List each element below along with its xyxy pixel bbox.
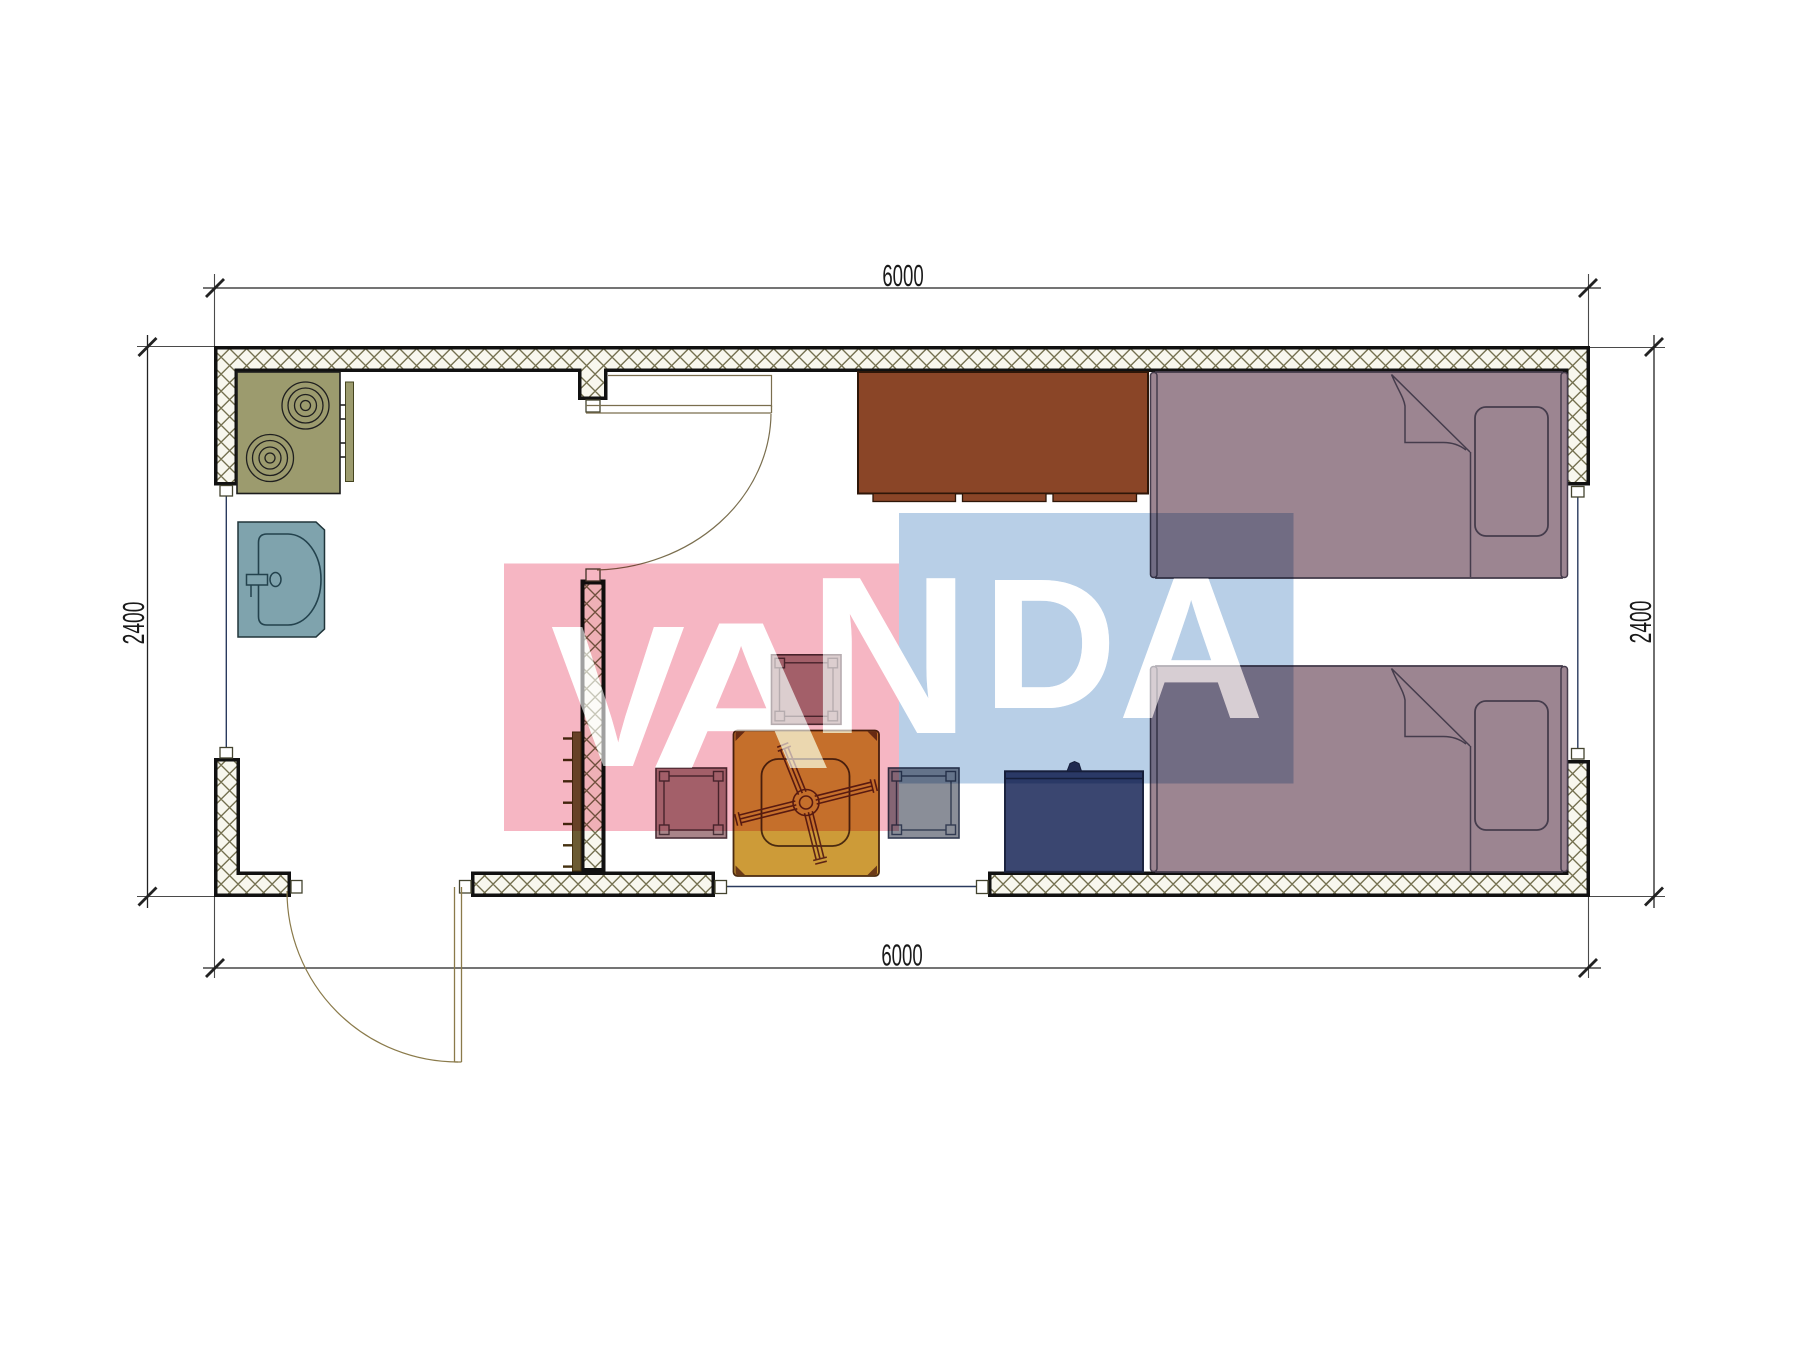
svg-text:A: A: [1118, 535, 1265, 762]
svg-text:6000: 6000: [882, 259, 923, 293]
svg-text:N: N: [808, 529, 971, 781]
svg-text:2400: 2400: [118, 602, 152, 645]
svg-text:A: A: [649, 578, 834, 813]
svg-text:6000: 6000: [881, 939, 922, 973]
svg-text:2400: 2400: [1625, 601, 1659, 644]
svg-text:D: D: [983, 541, 1117, 748]
